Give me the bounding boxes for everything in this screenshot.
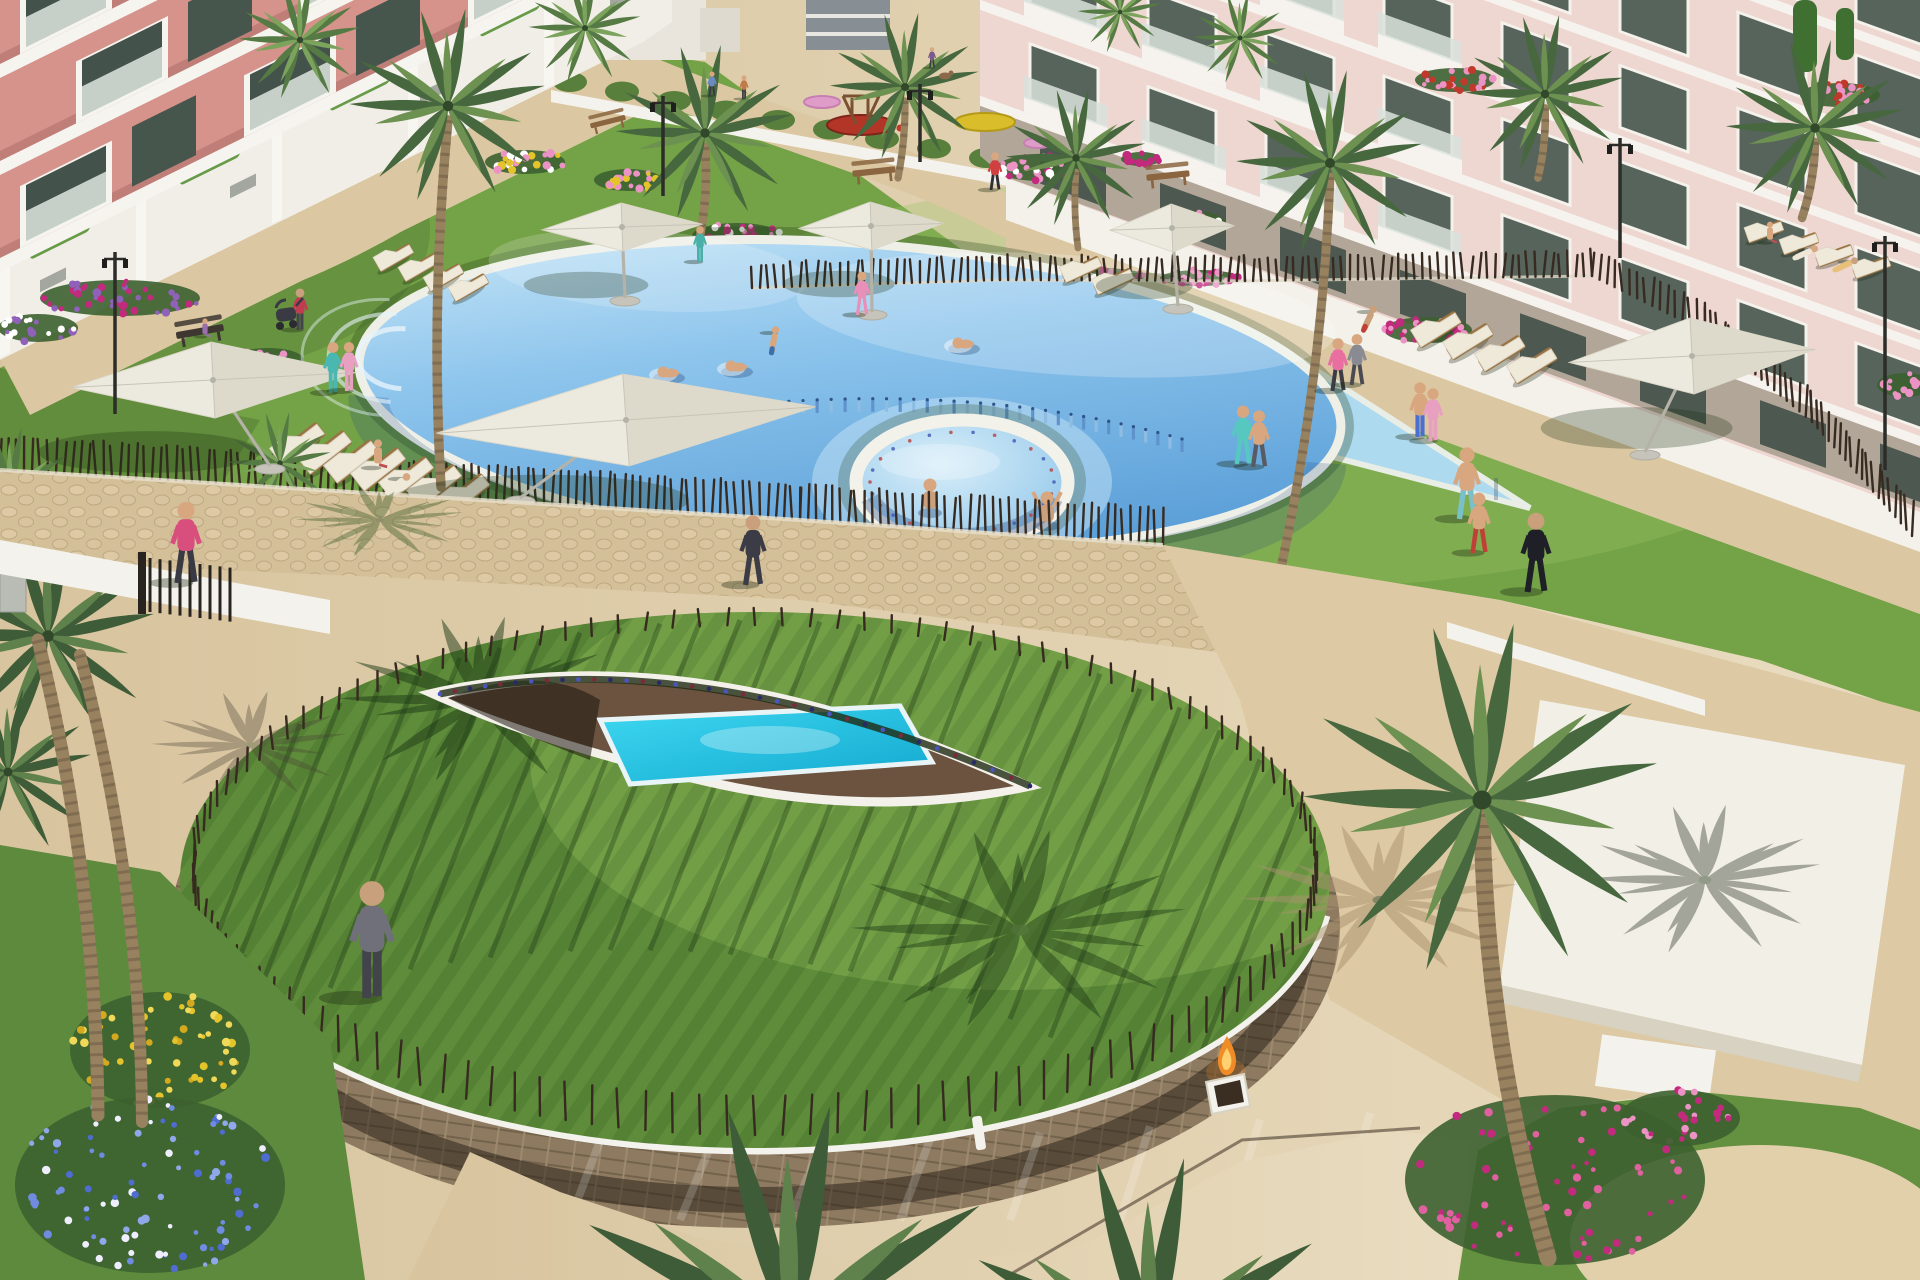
distant-building-slab: [806, 32, 890, 36]
architectural-render: Aerial rendering of residential complex …: [0, 0, 1920, 1280]
parasol-shadow: [524, 272, 649, 298]
distant-white-structure: [700, 8, 740, 52]
parasol-shadow: [782, 271, 894, 297]
parasol-shadow: [1541, 407, 1733, 449]
playground-disc: [804, 96, 840, 108]
indoor-pool-glare: [700, 726, 840, 754]
parasol-shadow: [38, 431, 260, 473]
distant-building-slab: [806, 14, 890, 18]
spa-glare: [880, 444, 1000, 480]
cypress-tree: [1836, 8, 1854, 60]
distant-building: [806, 0, 890, 50]
render-viewport: Aerial rendering of residential complex …: [0, 0, 1920, 1280]
